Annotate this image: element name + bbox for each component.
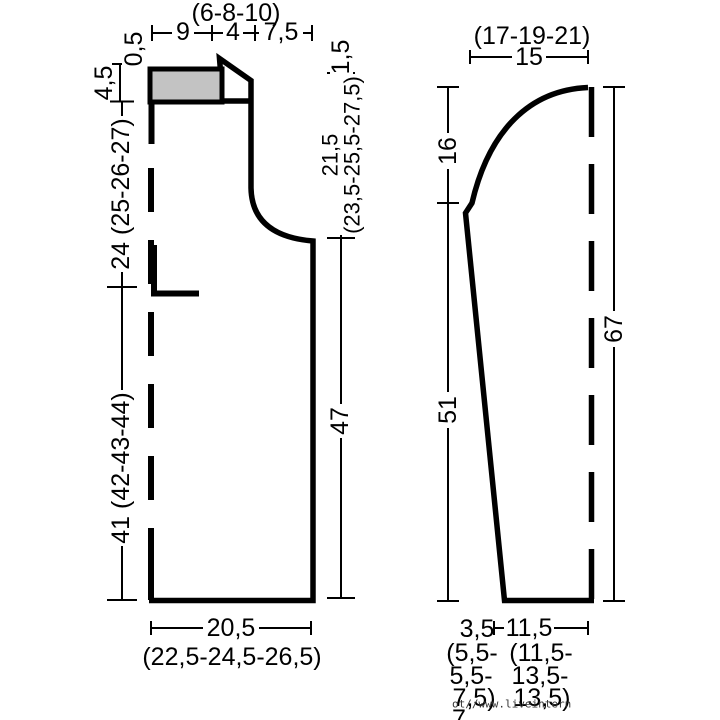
sleeve-left-h1-label: 16 xyxy=(434,137,462,165)
front-right-h2b-label: (23,5-25,5-27,5) xyxy=(340,76,365,234)
front-right-h1-label: 1,5 xyxy=(327,40,355,75)
front-right-h3-label: 47 xyxy=(326,407,354,435)
sleeve-outline xyxy=(466,88,595,601)
front-left-h3-label: 24 (25-26-27) xyxy=(107,118,135,269)
front-piece-outline xyxy=(149,59,313,601)
front-top-seg1-label: 9 xyxy=(176,18,190,46)
front-bottom-sizes-label: (22,5-24,5-26,5) xyxy=(142,643,321,671)
front-left-h1-label: 0,5 xyxy=(120,32,148,67)
front-shoulder-band xyxy=(150,69,222,102)
watermark-text: ot//www.liveintern xyxy=(452,698,571,711)
front-left-h4-label: 41 (42-43-44) xyxy=(107,392,135,543)
sleeve-cutoff-digit: 7 xyxy=(452,705,466,720)
sleeve-right-h1-label: 67 xyxy=(600,315,628,343)
knitting-schematic-page: 9 4 7,5 (6-8-10) 0,5 4,5 24 (25-26-27) 4… xyxy=(0,0,720,720)
sleeve-top-sizes-label: (17-19-21) xyxy=(474,22,591,50)
sleeve-bottom-w2-label: 11,5 xyxy=(506,614,553,642)
sleeve-left-h2-label: 51 xyxy=(434,396,462,424)
front-top-sizes-label: (6-8-10) xyxy=(192,0,281,27)
front-bottom-width-label: 20,5 xyxy=(207,614,256,642)
schematic-canvas: 9 4 7,5 (6-8-10) 0,5 4,5 24 (25-26-27) 4… xyxy=(0,0,720,720)
front-left-h2-label: 4,5 xyxy=(90,66,118,101)
